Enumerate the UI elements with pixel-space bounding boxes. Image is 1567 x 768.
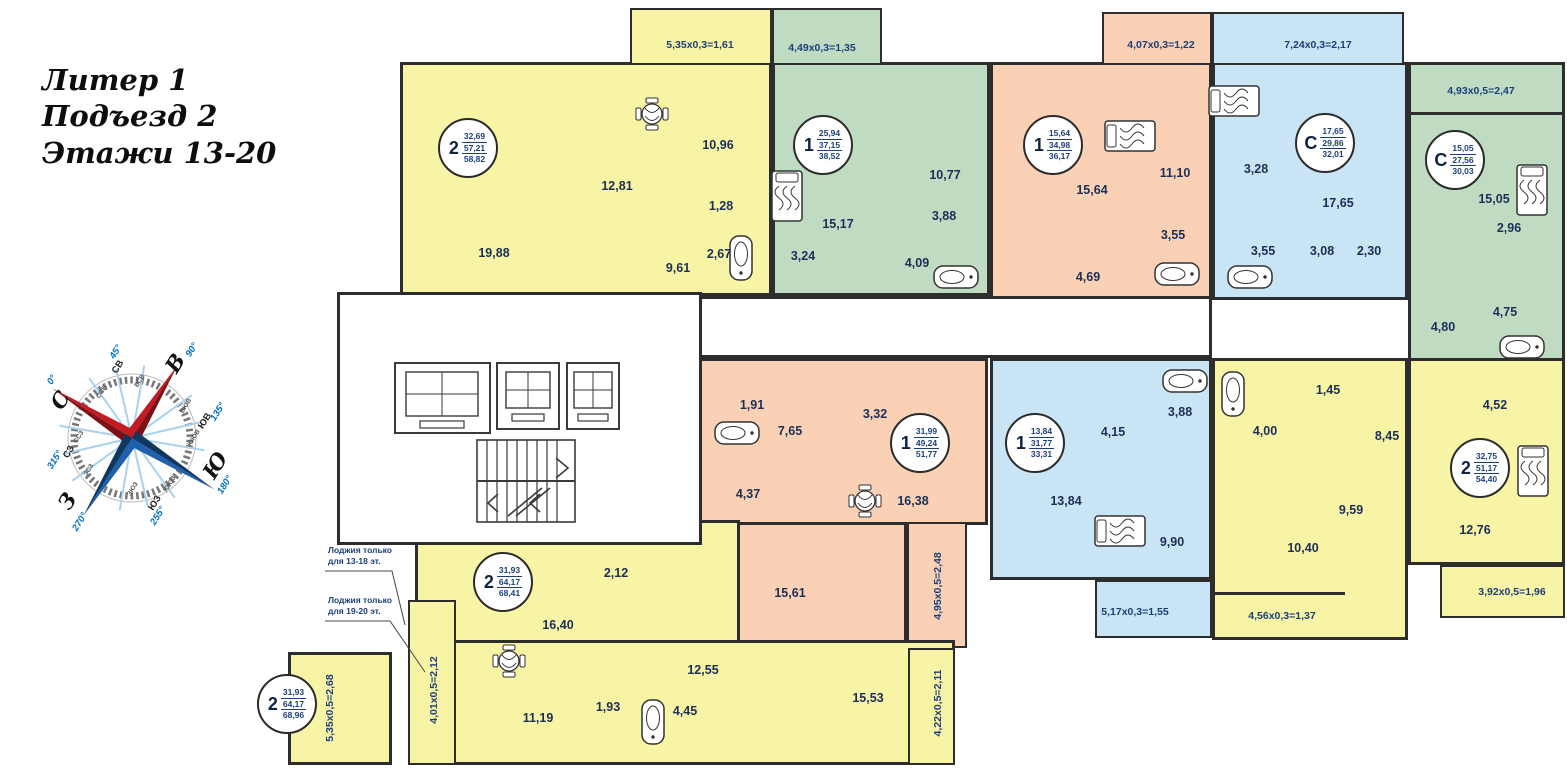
room-area-label: 9,61 <box>666 261 690 275</box>
area-values: 31,99 49,24 51,77 <box>914 426 939 460</box>
balcony-dim-label: 4,49x0,3=1,35 <box>788 42 855 54</box>
bathtub-icon <box>1163 370 1207 392</box>
room-area-label: 11,19 <box>523 711 554 725</box>
balcony-dim-label: 7,24x0,3=2,17 <box>1284 39 1351 51</box>
room-area-label: 15,64 <box>1076 183 1107 197</box>
room-area-label: 4,00 <box>1253 424 1277 438</box>
table-icon <box>636 98 668 130</box>
table-icon <box>493 645 525 677</box>
bathtub-icon <box>642 700 664 744</box>
bathtub-icon <box>730 236 752 280</box>
bed-icon <box>1209 86 1259 116</box>
bed-icon <box>1095 516 1145 546</box>
area-values: 31,93 64,17 68,96 <box>281 687 306 721</box>
bathtub-icon <box>1500 336 1544 358</box>
room-area-label: 12,81 <box>601 179 632 193</box>
bed-icon <box>1517 165 1547 215</box>
bathtub-icon <box>1155 263 1199 285</box>
bed-icon <box>772 171 802 221</box>
area-values: 25,94 37,15 38,52 <box>817 128 842 162</box>
area-values: 17,65 29,86 32,01 <box>1320 126 1345 160</box>
room-area-label: 2,30 <box>1357 244 1381 258</box>
balcony-dim-label: 4,01x0,5=2,12 <box>428 656 440 723</box>
room-area-label: 15,05 <box>1478 192 1509 206</box>
room-area-label: 3,88 <box>1168 405 1192 419</box>
area-values: 32,69 57,21 58,82 <box>462 131 487 165</box>
unit-count: 2 <box>484 572 494 593</box>
room-area-label: 9,90 <box>1160 535 1184 549</box>
room-area-label: 4,80 <box>1431 320 1455 334</box>
room-area-label: 4,09 <box>905 256 929 270</box>
bathtub-icon <box>1222 372 1244 416</box>
floor-plan-page: Литер 1 Подъезд 2 Этажи 13-20 <box>0 0 1567 768</box>
balcony-dim-label: 5,35x0,5=2,68 <box>324 674 336 741</box>
stat-circle-a1: 2 32,69 57,21 58,82 <box>438 118 498 178</box>
unit-count: 1 <box>1016 433 1026 454</box>
room-area-label: 3,55 <box>1251 244 1275 258</box>
area-values: 31,93 64,17 68,41 <box>497 565 522 599</box>
room-area-label: 4,52 <box>1483 398 1507 412</box>
loggia-note-13-18: Лоджия только для 13-18 эт. <box>328 545 392 567</box>
room-area-label: 3,88 <box>932 209 956 223</box>
unit-count: С <box>1434 150 1447 171</box>
room-area-label: 16,40 <box>542 618 573 632</box>
bathtub-icon <box>715 422 759 444</box>
room-area-label: 12,76 <box>1459 523 1490 537</box>
room-area-label: 10,77 <box>929 168 960 182</box>
balcony-dim-label: 5,17x0,3=1,55 <box>1101 606 1168 618</box>
room-area-label: 4,69 <box>1076 270 1100 284</box>
stat-circle-a5: С 15,05 27,56 30,03 <box>1425 130 1485 190</box>
area-values: 15,64 34,98 36,17 <box>1047 128 1072 162</box>
unit-count: 1 <box>804 135 814 156</box>
area-values: 32,75 51,17 54,40 <box>1474 451 1499 485</box>
bed-icon <box>1518 446 1548 496</box>
unit-count: 2 <box>449 138 459 159</box>
room-area-label: 3,55 <box>1161 228 1185 242</box>
room-area-label: 10,96 <box>702 138 733 152</box>
room-area-label: 4,15 <box>1101 425 1125 439</box>
note-leader-lines <box>325 571 425 672</box>
unit-count: 1 <box>901 433 911 454</box>
balcony-dim-label: 3,92x0,5=1,96 <box>1478 586 1545 598</box>
room-area-label: 15,17 <box>822 217 853 231</box>
balcony-dim-label: 4,07x0,3=1,22 <box>1127 39 1194 51</box>
area-values: 13,84 31,77 33,31 <box>1029 426 1054 460</box>
room-area-label: 4,75 <box>1493 305 1517 319</box>
room-area-label: 4,37 <box>736 487 760 501</box>
stat-circle-a10: 2 31,93 64,17 68,96 <box>257 674 317 734</box>
room-area-label: 3,24 <box>791 249 815 263</box>
unit-count: 2 <box>1461 458 1471 479</box>
room-area-label: 1,28 <box>709 199 733 213</box>
balcony-dim-label: 4,95x0,5=2,48 <box>932 552 944 619</box>
room-area-label: 2,96 <box>1497 221 1521 235</box>
room-area-label: 11,10 <box>1160 166 1191 180</box>
room-area-label: 16,38 <box>897 494 928 508</box>
room-area-label: 2,12 <box>604 566 628 580</box>
stat-circle-a9: 2 31,93 64,17 68,41 <box>473 552 533 612</box>
balcony-dim-label: 4,22x0,5=2,11 <box>932 670 944 737</box>
room-area-label: 3,28 <box>1244 162 1268 176</box>
unit-count: 1 <box>1034 135 1044 156</box>
loggia-note-19-20: Лоджия только для 19-20 эт. <box>328 595 392 617</box>
bed-icon <box>1105 121 1155 151</box>
room-area-label: 13,84 <box>1050 494 1081 508</box>
stat-circle-a2: 1 25,94 37,15 38,52 <box>793 115 853 175</box>
room-area-label: 15,61 <box>774 586 805 600</box>
room-area-label: 12,55 <box>687 663 718 677</box>
unit-count: 2 <box>268 694 278 715</box>
bathtub-icon <box>1228 266 1272 288</box>
bathtub-icon <box>934 266 978 288</box>
stat-circle-a4: С 17,65 29,86 32,01 <box>1295 113 1355 173</box>
room-area-label: 4,45 <box>673 704 697 718</box>
room-area-label: 1,93 <box>596 700 620 714</box>
room-area-label: 17,65 <box>1322 196 1353 210</box>
elevator-icons <box>395 363 619 433</box>
room-area-label: 15,53 <box>852 691 883 705</box>
room-area-label: 7,65 <box>778 424 802 438</box>
stat-circle-a6: 1 31,99 49,24 51,77 <box>890 413 950 473</box>
table-icon <box>849 485 881 517</box>
unit-count: С <box>1304 133 1317 154</box>
balcony-dim-label: 4,93x0,5=2,47 <box>1447 85 1514 97</box>
balcony-dim-label: 5,35x0,3=1,61 <box>666 39 733 51</box>
room-area-label: 1,45 <box>1316 383 1340 397</box>
room-area-label: 10,40 <box>1287 541 1318 555</box>
stat-circle-a3: 1 15,64 34,98 36,17 <box>1023 115 1083 175</box>
room-area-label: 3,08 <box>1310 244 1334 258</box>
room-area-label: 2,67 <box>707 247 731 261</box>
room-area-label: 1,91 <box>740 398 764 412</box>
room-area-label: 3,32 <box>863 407 887 421</box>
balcony-dim-label: 4,56x0,3=1,37 <box>1248 610 1315 622</box>
stat-circle-a8: 2 32,75 51,17 54,40 <box>1450 438 1510 498</box>
room-area-label: 19,88 <box>478 246 509 260</box>
room-area-label: 8,45 <box>1375 429 1399 443</box>
stat-circle-a7: 1 13,84 31,77 33,31 <box>1005 413 1065 473</box>
staircase-icon <box>477 440 575 522</box>
room-area-label: 9,59 <box>1339 503 1363 517</box>
area-values: 15,05 27,56 30,03 <box>1450 143 1475 177</box>
